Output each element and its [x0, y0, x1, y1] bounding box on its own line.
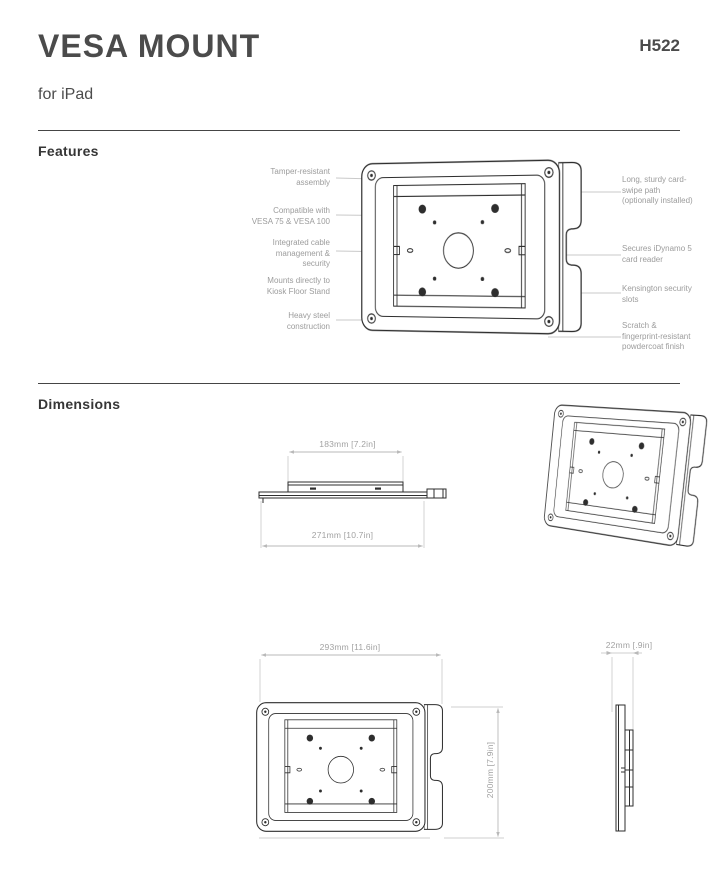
callout-vesa-compatible: Compatible with VESA 75 & VESA 100: [210, 206, 330, 227]
features-heading: Features: [38, 143, 99, 159]
page-subtitle: for iPad: [38, 86, 93, 104]
isometric-figure: [543, 404, 711, 550]
spec-sheet-page: VESA MOUNT H522 for iPad Features Tamper…: [0, 0, 718, 872]
model-number: H522: [639, 36, 680, 56]
vesa-mount-front-drawing: [256, 702, 446, 832]
vesa-mount-drawing: [361, 159, 586, 336]
callout-card-swipe-path: Long, sturdy card- swipe path (optionall…: [622, 175, 718, 207]
top-profile-figure: [250, 435, 460, 555]
page-title: VESA MOUNT: [38, 28, 260, 65]
callout-kensington: Kensington security slots: [622, 284, 718, 305]
callout-heavy-steel: Heavy steel construction: [210, 311, 330, 332]
features-figure: [361, 159, 586, 336]
dimensions-heading: Dimensions: [38, 396, 120, 412]
callout-powdercoat: Scratch & fingerprint-resistant powderco…: [622, 321, 718, 353]
side-profile-figure: [595, 633, 680, 843]
callout-kiosk-floor-stand: Mounts directly to Kiosk Floor Stand: [210, 276, 330, 297]
vesa-mount-iso-drawing: [543, 404, 711, 550]
callout-idynamo: Secures iDynamo 5 card reader: [622, 244, 718, 265]
section-divider: [38, 130, 680, 131]
callout-cable-management: Integrated cable management & security: [210, 238, 330, 270]
front-view-figure: [256, 702, 446, 832]
callout-tamper-resistant: Tamper-resistant assembly: [210, 167, 330, 188]
section-divider: [38, 383, 680, 384]
